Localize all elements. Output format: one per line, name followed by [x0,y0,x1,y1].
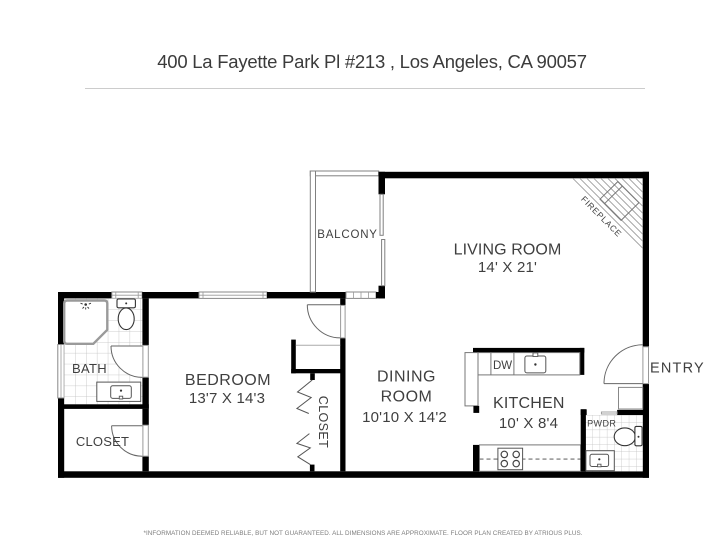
svg-text:KITCHEN: KITCHEN [493,395,565,412]
svg-text:PWDR: PWDR [587,418,616,428]
svg-text:DW: DW [493,360,512,372]
svg-text:DINING: DINING [377,369,436,386]
svg-text:13'7 X 14'3: 13'7 X 14'3 [189,390,265,407]
svg-text:14' X 21': 14' X 21' [478,259,537,276]
svg-text:LIVING ROOM: LIVING ROOM [454,242,562,259]
svg-text:10'10 X 14'2: 10'10 X 14'2 [362,409,447,426]
svg-text:CLOSET: CLOSET [76,434,129,449]
svg-text:ROOM: ROOM [381,389,433,406]
svg-text:CLOSET: CLOSET [316,396,330,448]
svg-text:10' X 8'4: 10' X 8'4 [499,415,558,432]
svg-text:BALCONY: BALCONY [317,229,378,241]
svg-text:BEDROOM: BEDROOM [185,372,271,389]
svg-text:ENTRY: ENTRY [650,361,705,377]
svg-text:BATH: BATH [72,361,107,376]
